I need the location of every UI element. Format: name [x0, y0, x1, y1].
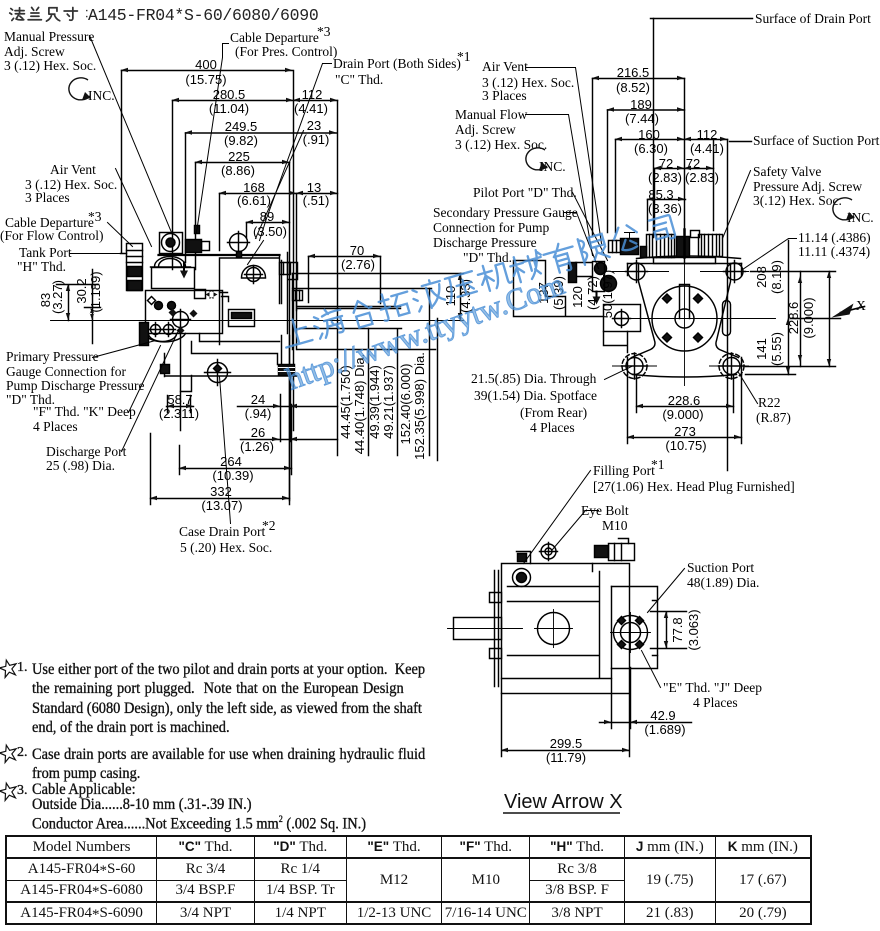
svg-text:89: 89	[260, 209, 274, 224]
svg-text:(R.87): (R.87)	[756, 410, 791, 425]
svg-text:5 (.20) Hex. Soc.: 5 (.20) Hex. Soc.	[180, 540, 272, 555]
svg-text:(13.07): (13.07)	[201, 498, 242, 513]
svg-text:112: 112	[697, 127, 718, 142]
svg-text:Air Vent: Air Vent	[50, 162, 96, 177]
svg-text:(6.30): (6.30)	[634, 141, 668, 156]
svg-text:*1: *1	[651, 457, 665, 472]
svg-text:INC.: INC.	[88, 88, 115, 103]
svg-text:Primary Pressure: Primary Pressure	[6, 349, 99, 364]
svg-text:Connection for Pump: Connection for Pump	[433, 220, 549, 235]
svg-text:(.94): (.94)	[245, 406, 272, 421]
svg-text:(1.189): (1.189)	[88, 271, 103, 312]
svg-text:72: 72	[686, 156, 700, 171]
svg-text:228.6: 228.6	[668, 393, 701, 408]
svg-text:Manual Pressure: Manual Pressure	[4, 29, 94, 44]
svg-text:*1: *1	[457, 49, 471, 64]
svg-text:21.5(.85) Dia. Through: 21.5(.85) Dia. Through	[471, 371, 597, 386]
svg-text:[27(1.06) Hex. Head Plug Furni: [27(1.06) Hex. Head Plug Furnished]	[593, 479, 795, 494]
svg-text:(3.063): (3.063)	[686, 609, 701, 650]
svg-text:Case Drain Port: Case Drain Port	[179, 524, 265, 539]
svg-text:Drain Port (Both Sides): Drain Port (Both Sides)	[333, 56, 461, 71]
svg-text:(4.41): (4.41)	[690, 141, 724, 156]
svg-text:70: 70	[350, 243, 364, 258]
svg-text:(1.26): (1.26)	[240, 439, 274, 454]
svg-text:Cable Departure: Cable Departure	[230, 30, 319, 45]
svg-text:3 Places: 3 Places	[25, 190, 70, 205]
svg-text:Gauge Connection for: Gauge Connection for	[6, 364, 126, 379]
svg-text:85.3: 85.3	[648, 187, 673, 202]
svg-text:Secondary Pressure Gauge: Secondary Pressure Gauge	[433, 205, 578, 220]
svg-text:*3: *3	[317, 24, 331, 39]
svg-text:(2.83): (2.83)	[648, 170, 682, 185]
svg-text:112: 112	[302, 87, 323, 102]
svg-text:(.91): (.91)	[303, 132, 330, 147]
svg-text:(2.83): (2.83)	[685, 170, 719, 185]
svg-text:Surface of Suction Port: Surface of Suction Port	[753, 133, 880, 148]
svg-text:(2.76): (2.76)	[341, 257, 375, 272]
svg-text:152.40(6.000): 152.40(6.000)	[398, 364, 413, 445]
svg-text:189: 189	[630, 97, 652, 112]
svg-text:225: 225	[228, 149, 250, 164]
svg-text:(3.36): (3.36)	[648, 201, 682, 216]
svg-text:23: 23	[307, 118, 321, 133]
svg-text:77.8: 77.8	[670, 617, 685, 642]
svg-text:50(1.97): 50(1.97)	[600, 270, 615, 318]
svg-text:(7.44): (7.44)	[625, 111, 659, 126]
svg-text:58.7: 58.7	[167, 392, 192, 407]
svg-text:Filling Port: Filling Port	[593, 463, 655, 478]
svg-text:(For Flow Control): (For Flow Control)	[0, 228, 104, 243]
svg-text:(11.79): (11.79)	[546, 750, 586, 765]
svg-text:Manual Flow: Manual Flow	[455, 107, 528, 122]
svg-text:A145-FR04*S-60/6080/6090: A145-FR04*S-60/6080/6090	[88, 6, 318, 25]
svg-text:152.35(5.998) Dia.: 152.35(5.998) Dia.	[412, 352, 427, 460]
svg-text:3 (.12) Hex. Soc.: 3 (.12) Hex. Soc.	[455, 137, 547, 152]
svg-text:Pilot Port "D" Thd.: Pilot Port "D" Thd.	[473, 185, 577, 200]
svg-text:(11.04): (11.04)	[209, 101, 249, 116]
svg-text:Air Vent: Air Vent	[482, 59, 528, 74]
svg-text:"E" Thd. "J" Deep: "E" Thd. "J" Deep	[663, 680, 762, 695]
svg-text:49.39(1.944): 49.39(1.944)	[367, 365, 382, 439]
svg-text:3(.12) Hex. Soc.: 3(.12) Hex. Soc.	[753, 193, 842, 208]
svg-text:24: 24	[251, 392, 265, 407]
svg-text:Discharge Port: Discharge Port	[46, 444, 127, 459]
svg-text:(.51): (.51)	[303, 193, 330, 208]
svg-text:*2: *2	[262, 518, 276, 533]
svg-text:(3.50): (3.50)	[253, 224, 287, 239]
svg-text:M10: M10	[602, 518, 628, 533]
svg-text:Suction Port: Suction Port	[687, 560, 754, 575]
svg-text:39(1.54) Dia. Spotface: 39(1.54) Dia. Spotface	[474, 388, 597, 403]
svg-text:4 Places: 4 Places	[530, 420, 575, 435]
svg-text:(8.86): (8.86)	[221, 163, 255, 178]
svg-text:(8.52): (8.52)	[616, 80, 650, 95]
svg-text:4 Places: 4 Places	[33, 419, 78, 434]
svg-text:25 (.98) Dia.: 25 (.98) Dia.	[46, 458, 115, 473]
svg-text:(9.000): (9.000)	[801, 297, 816, 338]
svg-text:3 Places: 3 Places	[482, 88, 527, 103]
svg-text:249.5: 249.5	[225, 119, 258, 134]
svg-text:Discharge Pressure: Discharge Pressure	[433, 235, 537, 250]
svg-text:72: 72	[659, 156, 673, 171]
svg-text:(4.41): (4.41)	[294, 101, 328, 116]
svg-text:(4.72): (4.72)	[585, 276, 600, 310]
svg-text:(2.311): (2.311)	[159, 406, 199, 421]
svg-text:R22: R22	[758, 395, 781, 410]
svg-text:(6.61): (6.61)	[237, 193, 271, 208]
svg-text:(9.82): (9.82)	[224, 133, 258, 148]
svg-text:(10.39): (10.39)	[212, 468, 253, 483]
svg-text:228.6: 228.6	[786, 302, 801, 335]
svg-text:120: 120	[570, 286, 585, 308]
svg-text:30.2: 30.2	[74, 278, 89, 303]
svg-text:299.5: 299.5	[550, 736, 583, 751]
svg-text:"H" Thd.: "H" Thd.	[17, 259, 66, 274]
svg-text:4 Places: 4 Places	[693, 695, 738, 710]
svg-text:26: 26	[251, 425, 265, 440]
svg-text:(From Rear): (From Rear)	[520, 405, 587, 420]
svg-text:(5.55): (5.55)	[769, 332, 784, 366]
svg-text:(3.27): (3.27)	[50, 280, 65, 314]
svg-text:"F" Thd. "K" Deep: "F" Thd. "K" Deep	[33, 404, 136, 419]
svg-text:*3: *3	[88, 209, 102, 224]
svg-text:42.9: 42.9	[650, 708, 675, 723]
svg-text:264: 264	[220, 454, 242, 469]
svg-text:Pressure Adj. Screw: Pressure Adj. Screw	[753, 179, 862, 194]
svg-text:"C" Thd.: "C" Thd.	[335, 72, 383, 87]
svg-text:Eye Bolt: Eye Bolt	[581, 503, 629, 518]
svg-text:400: 400	[195, 57, 217, 72]
svg-text:3 (.12) Hex. Soc.: 3 (.12) Hex. Soc.	[4, 58, 96, 73]
svg-text:48(1.89) Dia.: 48(1.89) Dia.	[687, 575, 759, 590]
svg-text:(8.19): (8.19)	[769, 260, 784, 294]
svg-text:(10.75): (10.75)	[665, 438, 706, 453]
svg-text:(15.75): (15.75)	[185, 72, 226, 87]
svg-text:280.5: 280.5	[213, 87, 246, 102]
svg-text:160: 160	[638, 127, 660, 142]
svg-text:49.21(1.937): 49.21(1.937)	[381, 365, 396, 439]
svg-text:332: 332	[210, 484, 232, 499]
svg-text:Adj. Screw: Adj. Screw	[455, 122, 516, 137]
svg-text:"D" Thd.: "D" Thd.	[463, 250, 512, 265]
svg-text:11.11 (.4374): 11.11 (.4374)	[798, 244, 870, 259]
svg-text:208: 208	[754, 266, 769, 288]
svg-text:273: 273	[674, 424, 696, 439]
svg-text:(For Pres. Control): (For Pres. Control)	[235, 44, 337, 59]
svg-text:Pump Discharge Pressure: Pump Discharge Pressure	[6, 378, 144, 393]
svg-text:141: 141	[754, 338, 769, 360]
svg-text:(9.000): (9.000)	[662, 407, 703, 422]
svg-text:Safety Valve: Safety Valve	[753, 164, 821, 179]
svg-text:X: X	[856, 298, 866, 313]
svg-text:Adj. Screw: Adj. Screw	[4, 44, 65, 59]
svg-text:Surface of Drain Port: Surface of Drain Port	[755, 11, 871, 26]
svg-text:216.5: 216.5	[617, 65, 650, 80]
svg-text:11.14 (.4386): 11.14 (.4386)	[798, 230, 871, 245]
svg-text:Tank Port: Tank Port	[19, 245, 72, 260]
svg-text:(1.689): (1.689)	[644, 722, 685, 737]
